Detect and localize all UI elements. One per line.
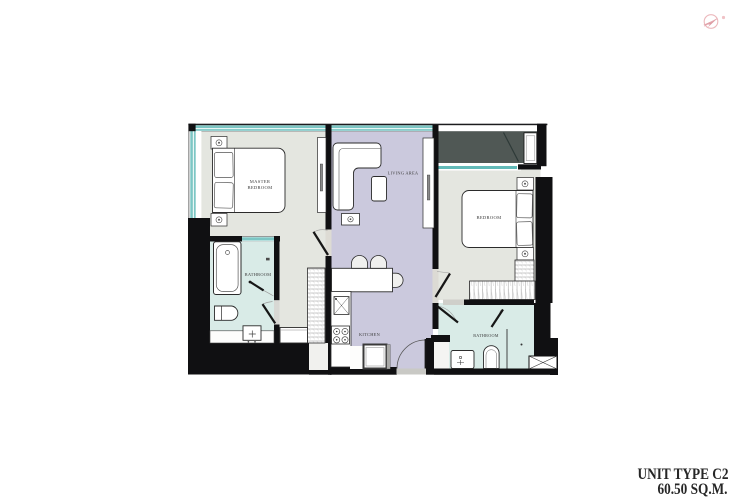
svg-text:BEDROOM: BEDROOM [247, 185, 272, 190]
svg-text:KITCHEN: KITCHEN [359, 332, 381, 337]
svg-text:MASTER: MASTER [250, 179, 271, 184]
svg-text:BATHROOM: BATHROOM [473, 333, 499, 338]
svg-text:BEDROOM: BEDROOM [476, 215, 501, 220]
svg-text:BATHROOM: BATHROOM [245, 272, 272, 277]
svg-text:60.50 SQ.M.: 60.50 SQ.M. [657, 481, 727, 498]
svg-text:LIVING AREA: LIVING AREA [388, 171, 419, 176]
